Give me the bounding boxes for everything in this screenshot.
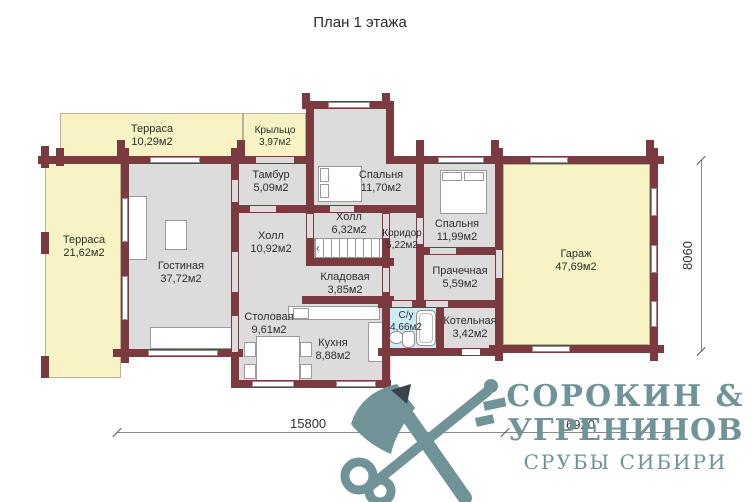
furniture: [150, 327, 238, 349]
window: [148, 350, 218, 356]
window: [530, 157, 568, 163]
axe-key-logo-icon: [333, 374, 518, 502]
stairs-direction-icon: ‹: [316, 240, 320, 256]
furniture: [300, 364, 312, 379]
furniture: [256, 336, 300, 382]
room-label-hall-small: Холл6,32м2: [331, 211, 366, 237]
window: [252, 381, 294, 387]
window: [150, 157, 200, 163]
furniture: [165, 220, 187, 250]
wall-segment: [489, 345, 664, 353]
furniture: [244, 342, 256, 357]
page-title: План 1 этажа: [0, 14, 720, 31]
brand-name-line2: УГРЕНИНОВ: [498, 414, 753, 448]
door-opening: [430, 248, 456, 254]
log-joint: [302, 93, 310, 109]
room-label-garage: Гараж47,69м2: [555, 248, 596, 274]
window: [651, 188, 657, 216]
log-joint: [237, 140, 245, 164]
door-opening: [250, 206, 276, 212]
room-label-vestibule: Тамбур5,09м2: [252, 169, 289, 195]
room-label-kitchen: Кухня8,88м2: [315, 337, 350, 363]
bay-floor: [314, 109, 386, 164]
door-opening: [392, 301, 412, 307]
door-opening: [496, 250, 502, 278]
door-opening: [232, 252, 238, 292]
room-label-living-room: Гостиная37,72м2: [158, 260, 204, 286]
door-opening: [232, 316, 238, 352]
dimension-right-height: 8060: [680, 241, 695, 270]
terrace-left-zone: [45, 157, 121, 378]
dimension-line-right: [701, 160, 702, 352]
furniture: [293, 308, 309, 319]
log-joint: [56, 148, 64, 166]
staircase: [314, 238, 384, 258]
furniture: [442, 172, 462, 181]
door-opening: [462, 349, 480, 355]
room-label-laundry: Прачечная5,59м2: [432, 265, 487, 291]
log-joint: [41, 356, 49, 378]
room-label-terrace-left: Терраса21,62м2: [63, 234, 105, 260]
room-label-bedroom-2: Спальня11,99м2: [435, 218, 479, 244]
door-opening: [256, 157, 294, 163]
window: [651, 245, 657, 273]
wall-segment: [306, 109, 314, 266]
dimension-overall-width: 15800: [290, 416, 326, 431]
window: [438, 157, 484, 163]
wall-segment: [378, 348, 503, 356]
floor-plan-page: План 1 этажа ‹ Терраса10,29м2 Крыльцо3,9…: [0, 0, 753, 502]
room-label-storage: Кладовая3,85м2: [320, 271, 369, 297]
door-opening: [307, 214, 313, 238]
room-label-dining: Столовая9,61м2: [244, 311, 293, 337]
room-label-corridor: Коридор5,22м2: [382, 228, 422, 252]
wall-segment: [302, 296, 394, 304]
furniture: [320, 168, 329, 182]
wall-segment: [489, 156, 664, 164]
window: [122, 198, 128, 242]
door-opening: [232, 180, 238, 202]
brand-name-line1: СОРОКИН &: [498, 380, 753, 414]
window: [651, 301, 657, 327]
furniture: [127, 196, 147, 260]
room-label-bedroom-1: Спальня11,70м2: [359, 169, 403, 195]
door-opening: [383, 268, 389, 292]
log-joint: [41, 232, 49, 254]
log-joint: [382, 93, 390, 109]
wall-segment: [121, 148, 129, 363]
wall-segment: [386, 101, 394, 164]
furniture: [244, 364, 256, 379]
room-label-terrace-top: Терраса10,29м2: [131, 123, 173, 149]
furniture: [464, 172, 484, 181]
wall-segment: [306, 258, 394, 266]
room-label-bathroom: С/у4,66м2: [390, 310, 422, 334]
window: [328, 102, 370, 108]
door-opening: [426, 301, 448, 307]
room-label-porch: Крыльцо3,97м2: [255, 125, 296, 149]
log-joint: [416, 140, 424, 156]
log-joint: [491, 140, 499, 156]
brand-tagline: СРУБЫ СИБИРИ: [498, 448, 753, 476]
log-joint: [646, 140, 654, 156]
furniture: [320, 184, 329, 198]
room-label-boiler: Котельная3,42м2: [443, 315, 496, 341]
room-label-hall-big: Холл10,92м2: [250, 230, 291, 256]
log-joint: [117, 140, 125, 156]
window: [122, 276, 128, 320]
log-joint: [41, 146, 49, 168]
furniture: [300, 342, 312, 357]
window: [532, 346, 570, 352]
company-logo-text: СОРОКИН & УГРЕНИНОВ СРУБЫ СИБИРИ: [498, 380, 753, 476]
